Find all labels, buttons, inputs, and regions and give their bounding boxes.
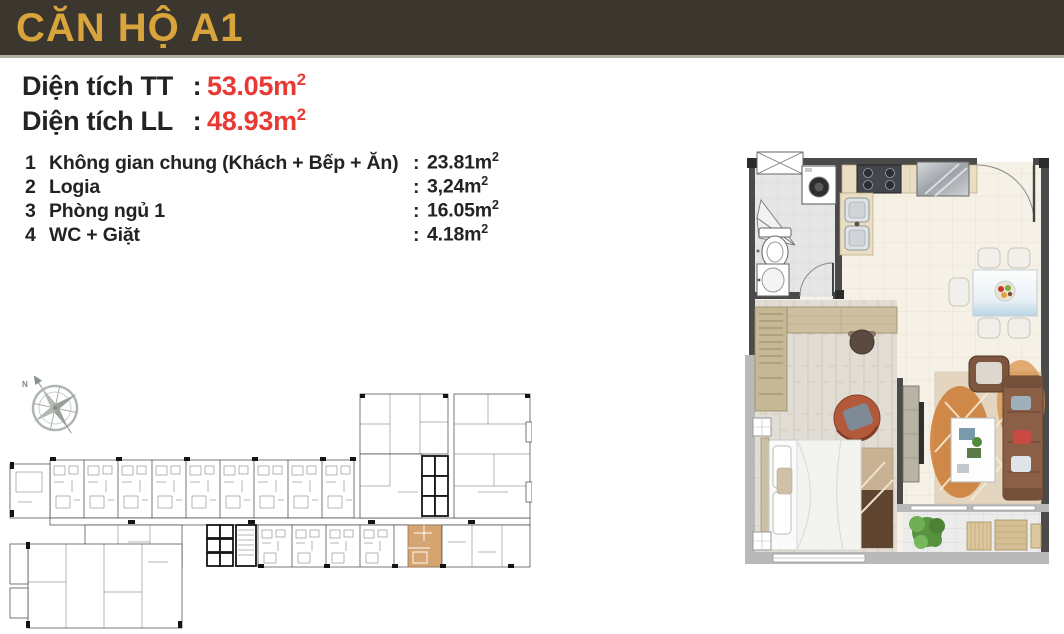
separator: : bbox=[413, 176, 427, 199]
room-name: Phòng ngủ 1 bbox=[49, 200, 413, 223]
separator: : bbox=[187, 106, 207, 137]
stove bbox=[857, 165, 901, 193]
separator: : bbox=[413, 224, 427, 247]
room-area: 16.05m2 bbox=[427, 198, 499, 223]
area-tt-label: Diện tích TT bbox=[22, 71, 187, 102]
room-area: 4.18m2 bbox=[427, 222, 488, 247]
separator: : bbox=[187, 71, 207, 102]
area-summary: Diện tích TT : 53.05m2 Diện tích LL : 48… bbox=[22, 70, 306, 140]
balcony-plant bbox=[909, 516, 945, 549]
room-list: 1 Không gian chung (Khách + Bếp + Ăn) : … bbox=[25, 150, 499, 246]
tv-screen bbox=[919, 402, 924, 464]
room-number: 3 bbox=[25, 200, 49, 223]
room-number: 4 bbox=[25, 224, 49, 247]
compass-north-label: N bbox=[22, 380, 28, 389]
siteplan-corridor bbox=[50, 518, 530, 525]
room-row: 4 WC + Giặt : 4.18m2 bbox=[25, 222, 499, 246]
header-divider bbox=[0, 55, 1064, 58]
apartment-floor-plan bbox=[745, 150, 1053, 567]
area-row-tt: Diện tích TT : 53.05m2 bbox=[22, 70, 306, 105]
siteplan-core-left bbox=[207, 525, 256, 566]
ac-ledge bbox=[757, 152, 803, 174]
coffee-table bbox=[951, 418, 995, 482]
siteplan-lower-wing bbox=[258, 525, 442, 567]
room-row: 2 Logia : 3,24m2 bbox=[25, 174, 499, 198]
fridge bbox=[917, 162, 969, 196]
red-pillow bbox=[1013, 430, 1031, 444]
room-number: 1 bbox=[25, 152, 49, 175]
bedroom-armchair bbox=[834, 395, 880, 441]
sofa bbox=[1003, 376, 1043, 500]
room-area: 23.81m2 bbox=[427, 150, 499, 175]
wc-sink bbox=[757, 264, 789, 296]
room-name: Logia bbox=[49, 176, 413, 199]
brochure-page: CĂN HỘ A1 Diện tích TT : 53.05m2 Diện tí… bbox=[0, 0, 1064, 634]
room-name: WC + Giặt bbox=[49, 224, 413, 247]
room-name: Không gian chung (Khách + Bếp + Ăn) bbox=[49, 152, 413, 175]
siteplan-upper-wing bbox=[50, 460, 354, 518]
bed bbox=[761, 438, 861, 550]
room-number: 2 bbox=[25, 176, 49, 199]
room-row: 3 Phòng ngủ 1 : 16.05m2 bbox=[25, 198, 499, 222]
area-tt-value: 53.05m2 bbox=[207, 70, 306, 102]
separator: : bbox=[413, 152, 427, 175]
area-ll-value: 48.93m2 bbox=[207, 105, 306, 137]
area-row-ll: Diện tích LL : 48.93m2 bbox=[22, 105, 306, 140]
room-area: 3,24m2 bbox=[427, 174, 488, 199]
separator: : bbox=[413, 200, 427, 223]
washing-machine bbox=[802, 166, 836, 204]
room-row: 1 Không gian chung (Khách + Bếp + Ăn) : … bbox=[25, 150, 499, 174]
building-site-plan bbox=[8, 392, 532, 632]
area-ll-label: Diện tích LL bbox=[22, 106, 187, 137]
page-title: CĂN HỘ A1 bbox=[0, 0, 1064, 51]
title-bar: CĂN HỘ A1 bbox=[0, 0, 1064, 55]
